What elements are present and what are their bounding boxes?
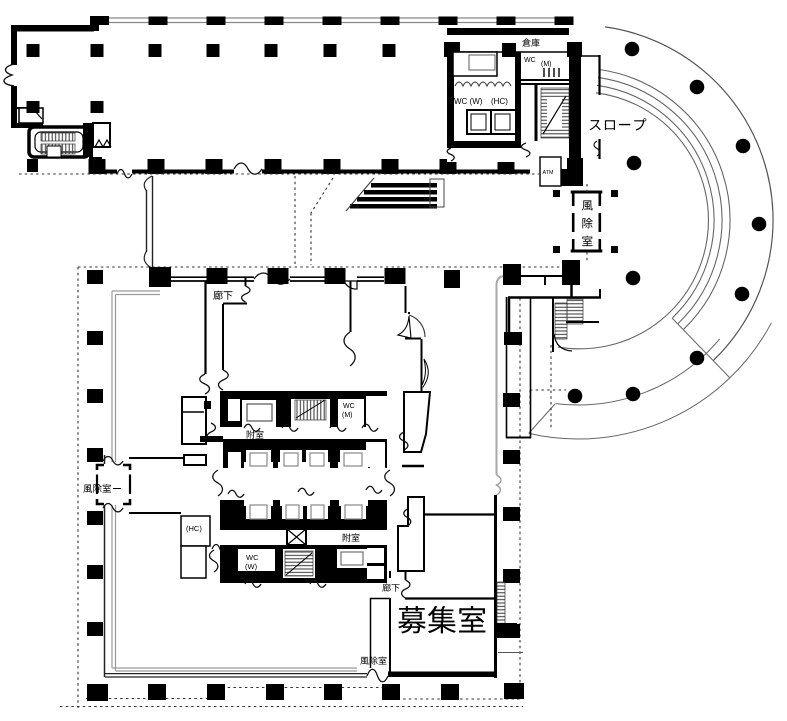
svg-text:(W): (W) bbox=[245, 562, 258, 571]
svg-text:WC: WC bbox=[524, 57, 536, 64]
svg-text:(HC): (HC) bbox=[186, 524, 202, 533]
svg-text:(M): (M) bbox=[342, 412, 353, 419]
svg-text:(M): (M) bbox=[541, 61, 552, 68]
svg-text:WC: WC bbox=[343, 403, 355, 410]
svg-text:ATM: ATM bbox=[543, 170, 554, 176]
svg-text:(HC): (HC) bbox=[491, 97, 508, 106]
svg-text:WC (W): WC (W) bbox=[454, 97, 483, 106]
svg-text:WC: WC bbox=[246, 553, 259, 562]
